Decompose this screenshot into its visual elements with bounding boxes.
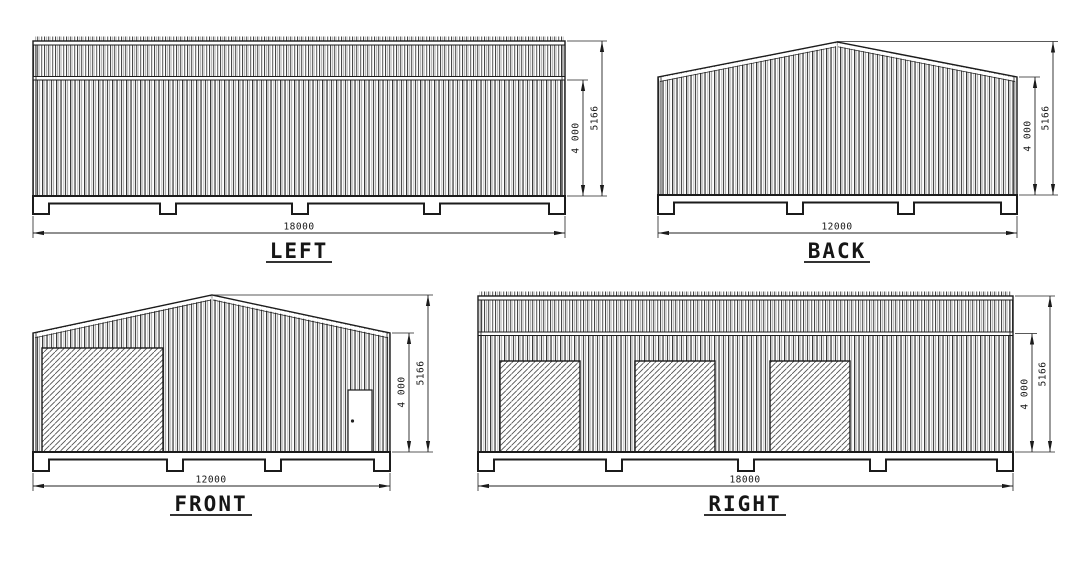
back-eave-dim-text: 4 000 bbox=[1023, 120, 1034, 151]
right-width-dim-text: 18000 bbox=[729, 475, 760, 486]
right-roller-door-2 bbox=[635, 361, 715, 452]
elevation-drawing-sheet: 18000 4 000 5166 LEFT bbox=[0, 0, 1080, 568]
left-view-label: LEFT bbox=[270, 239, 329, 263]
left-building bbox=[33, 37, 565, 215]
front-ridge-dim-text: 5166 bbox=[416, 361, 427, 386]
elevation-drawing: 18000 4 000 5166 LEFT bbox=[0, 0, 1080, 568]
right-building bbox=[478, 292, 1013, 472]
right-roller-door-1 bbox=[500, 361, 580, 452]
left-eave-dim-text: 4 000 bbox=[571, 122, 582, 153]
right-view-label: RIGHT bbox=[708, 492, 781, 516]
front-width-dim-text: 12000 bbox=[195, 475, 226, 486]
front-building bbox=[33, 295, 390, 471]
left-wall-siding bbox=[33, 80, 565, 196]
right-ridge-dim-text: 5166 bbox=[1038, 362, 1049, 387]
front-roller-door bbox=[42, 348, 163, 452]
back-view-label: BACK bbox=[808, 239, 867, 263]
front-view-label: FRONT bbox=[174, 492, 247, 516]
back-ridge-dim-text: 5166 bbox=[1041, 106, 1052, 131]
front-door-knob bbox=[351, 419, 354, 422]
right-eave-dim-text: 4 000 bbox=[1020, 378, 1031, 409]
left-width-dim-text: 18000 bbox=[283, 222, 314, 233]
left-roof-band bbox=[33, 45, 565, 77]
right-roof-band bbox=[478, 300, 1013, 332]
front-eave-dim-text: 4 000 bbox=[397, 376, 408, 407]
left-ridge-dim-text: 5166 bbox=[590, 106, 601, 131]
back-building bbox=[658, 42, 1017, 214]
back-width-dim-text: 12000 bbox=[821, 222, 852, 233]
right-roller-door-3 bbox=[770, 361, 850, 452]
